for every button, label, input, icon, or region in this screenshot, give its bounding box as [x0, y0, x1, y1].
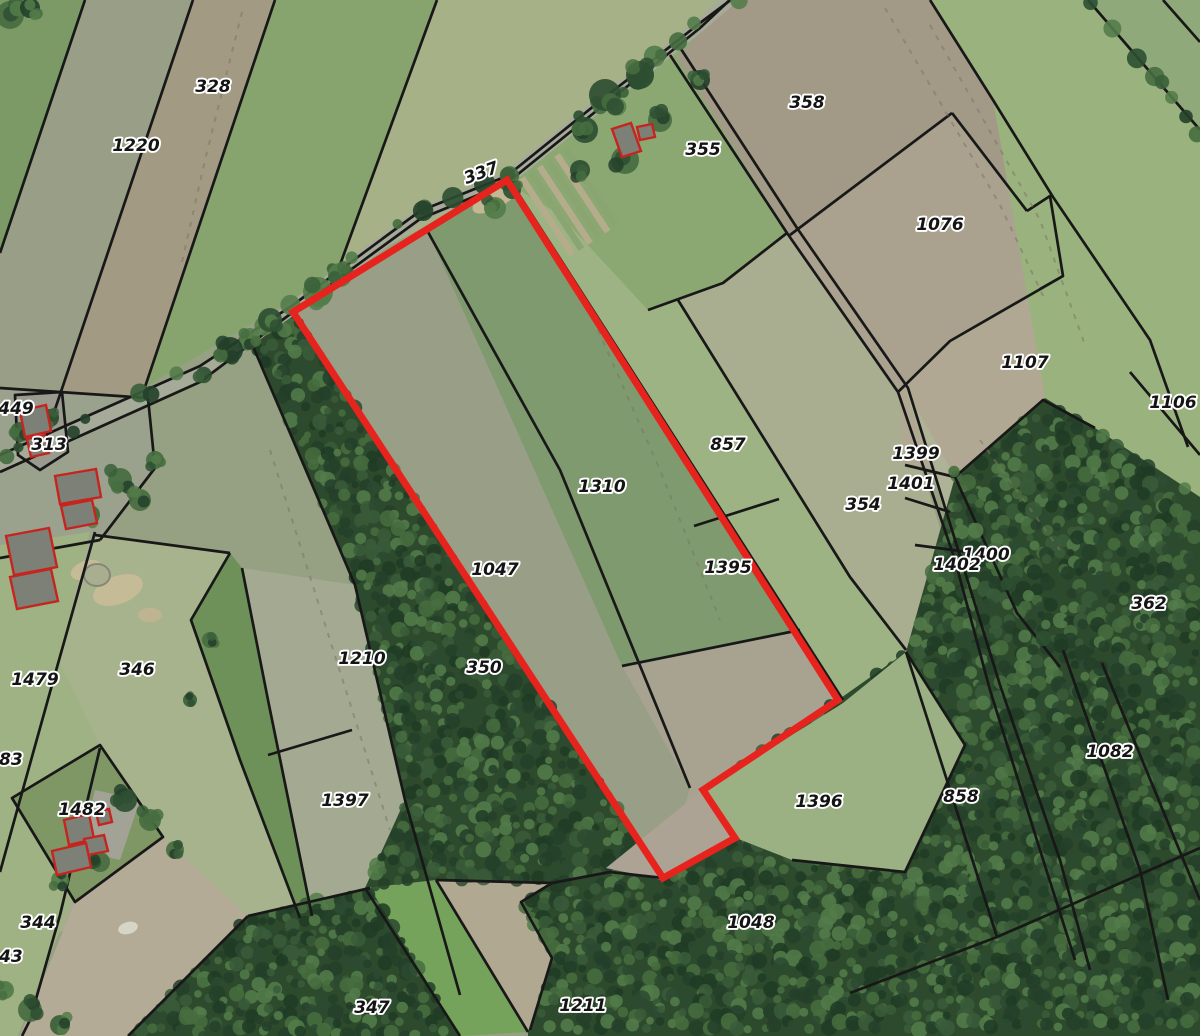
forest-canopy: [1136, 734, 1150, 748]
tree: [207, 632, 216, 641]
parcel-label-1047: 1047: [471, 560, 518, 580]
forest-canopy: [1122, 607, 1132, 617]
forest-canopy: [642, 1024, 651, 1033]
forest-canopy: [971, 963, 981, 973]
forest-canopy: [1129, 632, 1137, 640]
forest-canopy: [1144, 951, 1155, 962]
forest-canopy: [1093, 533, 1106, 546]
pond: [84, 564, 110, 586]
forest-canopy: [1075, 799, 1086, 810]
forest-canopy: [536, 1019, 545, 1028]
forest-canopy: [404, 786, 418, 800]
forest-canopy: [965, 761, 972, 768]
forest-canopy: [1022, 1007, 1034, 1019]
forest-canopy: [959, 474, 976, 491]
forest-canopy: [543, 1020, 555, 1032]
forest-canopy: [986, 729, 997, 740]
forest-canopy: [667, 974, 675, 982]
parcel-label-1076: 1076: [916, 215, 963, 235]
forest-canopy: [896, 957, 907, 968]
forest-canopy: [1101, 463, 1109, 471]
forest-canopy: [802, 906, 810, 914]
forest-canopy: [946, 958, 953, 965]
parcel-label-1048: 1048: [727, 913, 774, 933]
forest-canopy: [214, 957, 222, 965]
forest-canopy: [879, 1021, 888, 1030]
building-outline: [6, 528, 57, 575]
forest-canopy: [892, 1024, 900, 1032]
forest-canopy: [546, 730, 560, 744]
forest-canopy: [986, 776, 995, 785]
forest-canopy: [1054, 817, 1068, 831]
forest-canopy: [715, 951, 724, 960]
forest-canopy: [804, 1024, 814, 1034]
forest-canopy: [209, 1021, 220, 1032]
tree: [104, 464, 117, 477]
forest-canopy: [913, 988, 924, 999]
forest-canopy: [987, 1008, 995, 1016]
tree: [213, 348, 227, 362]
forest-canopy: [559, 774, 573, 788]
forest-canopy: [688, 1003, 704, 1019]
forest-canopy: [839, 969, 847, 977]
forest-canopy: [1033, 752, 1042, 761]
forest-canopy: [1099, 450, 1108, 459]
forest-canopy: [659, 899, 667, 907]
forest-canopy: [327, 945, 342, 960]
forest-canopy: [537, 764, 553, 780]
forest-canopy: [623, 925, 638, 940]
forest-canopy: [1066, 699, 1073, 706]
forest-canopy: [412, 524, 420, 532]
forest-canopy: [758, 973, 767, 982]
forest-canopy: [417, 1018, 426, 1027]
forest-canopy: [623, 965, 634, 976]
forest-canopy: [778, 975, 790, 987]
forest-canopy: [407, 763, 422, 778]
forest-canopy: [1156, 686, 1165, 695]
tree: [49, 407, 59, 417]
forest-canopy: [735, 962, 744, 971]
forest-canopy: [1077, 619, 1088, 630]
forest-canopy: [389, 480, 396, 487]
forest-canopy: [491, 736, 505, 750]
forest-canopy: [355, 533, 366, 544]
forest-canopy: [924, 646, 934, 656]
forest-canopy: [777, 986, 784, 993]
forest-canopy: [1098, 641, 1110, 653]
tree: [129, 486, 141, 498]
forest-canopy: [528, 778, 536, 786]
forest-canopy: [799, 1008, 808, 1017]
forest-canopy: [1102, 589, 1110, 597]
forest-canopy: [917, 918, 926, 927]
forest-canopy: [1118, 691, 1127, 700]
forest-canopy: [1060, 838, 1073, 851]
forest-canopy: [1025, 847, 1033, 855]
forest-canopy: [753, 895, 764, 906]
forest-canopy: [1115, 486, 1129, 500]
forest-canopy: [1068, 855, 1076, 863]
forest-canopy: [1041, 980, 1049, 988]
forest-canopy: [258, 938, 268, 948]
forest-canopy: [499, 822, 512, 835]
forest-canopy: [952, 503, 962, 513]
parcel-label-1220: 1220: [112, 136, 159, 156]
forest-canopy: [397, 1002, 408, 1013]
tree: [173, 840, 183, 850]
forest-canopy: [1129, 773, 1141, 785]
tree: [346, 251, 358, 263]
forest-canopy: [944, 841, 951, 848]
forest-canopy: [586, 829, 601, 844]
forest-canopy: [1162, 892, 1177, 907]
forest-canopy: [213, 1001, 226, 1014]
forest-canopy: [1099, 930, 1109, 940]
parcel-label-1479: 1479: [11, 670, 58, 690]
forest-canopy: [569, 886, 579, 896]
forest-canopy: [399, 531, 414, 546]
forest-canopy: [1155, 1017, 1164, 1026]
forest-canopy: [488, 811, 498, 821]
forest-canopy: [924, 624, 933, 633]
forest-canopy: [479, 647, 490, 658]
forest-canopy: [1138, 541, 1152, 555]
forest-canopy: [497, 777, 509, 789]
forest-canopy: [894, 994, 907, 1007]
forest-canopy: [867, 918, 874, 925]
forest-canopy: [1079, 791, 1087, 799]
forest-canopy: [483, 831, 495, 843]
forest-canopy: [877, 876, 884, 883]
forest-canopy: [534, 709, 545, 720]
forest-canopy: [1183, 811, 1191, 819]
forest-canopy: [340, 914, 348, 922]
forest-canopy: [1192, 823, 1200, 831]
forest-canopy: [1087, 647, 1095, 655]
forest-canopy: [984, 1020, 998, 1034]
forest-canopy: [624, 974, 634, 984]
forest-canopy: [405, 755, 413, 763]
forest-canopy: [513, 727, 524, 738]
forest-canopy: [989, 841, 998, 850]
forest-canopy: [744, 877, 754, 887]
map-viewport[interactable]: 3281220337355358107611071106449313857139…: [0, 0, 1200, 1036]
forest-canopy: [566, 972, 577, 983]
tree: [9, 427, 20, 438]
forest-canopy: [1127, 952, 1141, 966]
cadastral-map[interactable]: 3281220337355358107611071106449313857139…: [0, 0, 1200, 1036]
forest-canopy: [404, 612, 419, 627]
forest-canopy: [648, 941, 657, 950]
forest-canopy: [603, 837, 612, 846]
parcel-label-858: 858: [943, 787, 979, 807]
forest-canopy: [679, 1008, 687, 1016]
forest-canopy: [612, 1019, 626, 1033]
forest-canopy: [903, 938, 918, 953]
forest-canopy: [1170, 694, 1187, 711]
forest-canopy: [229, 957, 244, 972]
forest-canopy: [851, 915, 866, 930]
tree: [80, 414, 90, 424]
forest-canopy: [635, 1008, 647, 1020]
forest-canopy: [1089, 567, 1096, 574]
forest-canopy: [579, 769, 586, 776]
forest-canopy: [1179, 482, 1191, 494]
forest-canopy: [1129, 663, 1141, 675]
forest-canopy: [987, 969, 1001, 983]
forest-canopy: [495, 709, 506, 720]
forest-canopy: [744, 1025, 752, 1033]
forest-canopy: [351, 504, 361, 514]
forest-canopy: [400, 580, 408, 588]
forest-canopy: [955, 774, 965, 784]
forest-canopy: [678, 983, 686, 991]
forest-canopy: [856, 928, 872, 944]
forest-canopy: [1004, 1005, 1020, 1021]
forest-canopy: [626, 1019, 639, 1032]
forest-canopy: [1010, 868, 1021, 879]
forest-canopy: [887, 928, 897, 938]
forest-canopy: [1044, 966, 1057, 979]
parcel-label-343: 343: [0, 947, 23, 967]
forest-canopy: [656, 1017, 665, 1026]
forest-canopy: [1172, 666, 1184, 678]
forest-canopy: [455, 691, 464, 700]
forest-canopy: [664, 921, 672, 929]
parcel-label-857: 857: [710, 435, 746, 455]
forest-canopy: [537, 787, 546, 796]
forest-canopy: [1057, 581, 1064, 588]
forest-canopy: [411, 742, 425, 756]
parcel-label-328: 328: [195, 77, 231, 97]
tree: [484, 202, 496, 214]
forest-canopy: [1011, 851, 1024, 864]
parcel-label-1082: 1082: [1086, 742, 1133, 762]
forest-canopy: [923, 859, 933, 869]
forest-canopy: [1157, 760, 1172, 775]
forest-canopy: [1032, 423, 1045, 436]
forest-canopy: [274, 1011, 283, 1020]
forest-canopy: [546, 788, 555, 797]
forest-canopy: [1089, 847, 1099, 857]
forest-canopy: [1080, 672, 1089, 681]
forest-canopy: [337, 503, 344, 510]
forest-canopy: [578, 965, 586, 973]
forest-canopy: [951, 662, 966, 677]
forest-canopy: [1172, 873, 1186, 887]
forest-canopy: [1137, 487, 1150, 500]
forest-canopy: [1053, 523, 1061, 531]
forest-canopy: [1018, 896, 1033, 911]
forest-canopy: [1065, 790, 1074, 799]
forest-canopy: [852, 964, 862, 974]
forest-canopy: [604, 970, 617, 983]
forest-canopy: [386, 667, 394, 675]
forest-canopy: [812, 1016, 821, 1025]
parcel-label-350: 350: [466, 658, 502, 678]
forest-canopy: [1045, 781, 1057, 793]
forest-canopy: [1074, 971, 1086, 983]
forest-canopy: [702, 1012, 709, 1019]
forest-canopy: [524, 819, 535, 830]
forest-canopy: [1138, 552, 1150, 564]
tree: [1103, 20, 1121, 38]
tree: [111, 481, 124, 494]
forest-canopy: [1117, 547, 1127, 557]
forest-canopy: [977, 673, 985, 681]
forest-canopy: [1139, 525, 1150, 536]
forest-canopy: [660, 912, 671, 923]
forest-canopy: [1060, 605, 1068, 613]
forest-canopy: [180, 994, 192, 1006]
forest-canopy: [939, 860, 953, 874]
forest-canopy: [1184, 943, 1196, 955]
forest-canopy: [219, 979, 226, 986]
forest-canopy: [259, 917, 267, 925]
forest-canopy: [366, 611, 377, 622]
forest-canopy: [444, 729, 452, 737]
forest-canopy: [1130, 566, 1145, 581]
forest-canopy: [1020, 479, 1036, 495]
forest-canopy: [1037, 483, 1044, 490]
forest-canopy: [691, 917, 702, 928]
forest-canopy: [475, 869, 492, 886]
forest-canopy: [1042, 1010, 1050, 1018]
forest-canopy: [1152, 736, 1161, 745]
forest-canopy: [1042, 743, 1053, 754]
forest-canopy: [678, 952, 691, 965]
forest-canopy: [297, 416, 306, 425]
forest-canopy: [561, 1019, 574, 1032]
forest-canopy: [561, 811, 569, 819]
forest-canopy: [445, 578, 453, 586]
forest-canopy: [1192, 649, 1199, 656]
forest-canopy: [938, 646, 947, 655]
forest-canopy: [1144, 698, 1157, 711]
forest-canopy: [1061, 566, 1075, 580]
forest-canopy: [927, 584, 935, 592]
forest-canopy: [697, 954, 711, 968]
tree: [67, 426, 80, 439]
forest-canopy: [535, 796, 549, 810]
forest-canopy: [276, 954, 288, 966]
forest-canopy: [577, 954, 588, 965]
forest-canopy: [547, 926, 559, 938]
forest-canopy: [600, 799, 607, 806]
forest-canopy: [912, 1011, 922, 1021]
tree: [24, 994, 37, 1007]
forest-canopy: [434, 755, 447, 768]
forest-canopy: [591, 798, 600, 807]
forest-canopy: [456, 743, 471, 758]
forest-canopy: [654, 975, 665, 986]
forest-canopy: [354, 455, 370, 471]
forest-canopy: [1188, 831, 1200, 843]
forest-canopy: [401, 874, 413, 886]
forest-canopy: [986, 606, 994, 614]
forest-canopy: [1001, 452, 1010, 461]
forest-canopy: [415, 555, 427, 567]
forest-canopy: [813, 885, 823, 895]
forest-canopy: [1121, 523, 1129, 531]
forest-canopy: [309, 914, 321, 926]
forest-canopy: [1042, 767, 1050, 775]
parcel-label-358: 358: [789, 93, 825, 113]
forest-canopy: [345, 419, 358, 432]
forest-canopy: [1026, 534, 1033, 541]
forest-canopy: [240, 969, 250, 979]
forest-canopy: [355, 446, 364, 455]
forest-canopy: [1018, 718, 1031, 731]
parcel-label-313: 313: [31, 435, 67, 455]
forest-canopy: [548, 976, 556, 984]
forest-canopy: [520, 854, 529, 863]
forest-canopy: [1027, 565, 1042, 580]
forest-canopy: [512, 690, 520, 698]
forest-canopy: [1040, 1018, 1053, 1031]
tree: [625, 59, 640, 74]
forest-canopy: [932, 826, 941, 835]
forest-canopy: [443, 776, 453, 786]
forest-canopy: [557, 804, 565, 812]
forest-canopy: [1173, 629, 1181, 637]
forest-canopy: [1077, 503, 1087, 513]
forest-canopy: [1131, 1013, 1139, 1021]
forest-canopy: [414, 691, 424, 701]
forest-canopy: [976, 473, 984, 481]
forest-canopy: [301, 436, 309, 444]
parcel-label-355: 355: [685, 140, 721, 160]
tree: [110, 794, 123, 807]
forest-canopy: [1001, 777, 1012, 788]
forest-canopy: [1026, 863, 1034, 871]
forest-canopy: [939, 1020, 955, 1036]
forest-canopy: [307, 379, 320, 392]
forest-canopy: [1104, 940, 1115, 951]
forest-canopy: [388, 854, 399, 865]
forest-canopy: [351, 932, 366, 947]
forest-canopy: [662, 888, 673, 899]
forest-canopy: [755, 855, 763, 863]
forest-canopy: [637, 882, 644, 889]
forest-canopy: [431, 742, 441, 752]
tree: [608, 157, 623, 172]
forest-canopy: [956, 873, 968, 885]
parcel-label-344: 344: [20, 913, 56, 933]
forest-canopy: [916, 877, 924, 885]
forest-canopy: [735, 954, 743, 962]
forest-canopy: [1106, 603, 1115, 612]
forest-canopy: [429, 828, 436, 835]
forest-canopy: [1050, 755, 1058, 763]
forest-canopy: [444, 610, 456, 622]
forest-canopy: [590, 883, 602, 895]
forest-canopy: [566, 961, 578, 973]
forest-canopy: [1058, 973, 1065, 980]
forest-canopy: [773, 957, 789, 973]
forest-canopy: [974, 809, 984, 819]
forest-canopy: [375, 620, 388, 633]
forest-canopy: [1096, 433, 1106, 443]
forest-canopy: [242, 1020, 256, 1034]
forest-canopy: [776, 928, 785, 937]
forest-canopy: [802, 993, 813, 1004]
forest-canopy: [1118, 581, 1130, 593]
forest-canopy: [288, 345, 302, 359]
forest-canopy: [157, 1023, 166, 1032]
forest-canopy: [650, 878, 660, 888]
